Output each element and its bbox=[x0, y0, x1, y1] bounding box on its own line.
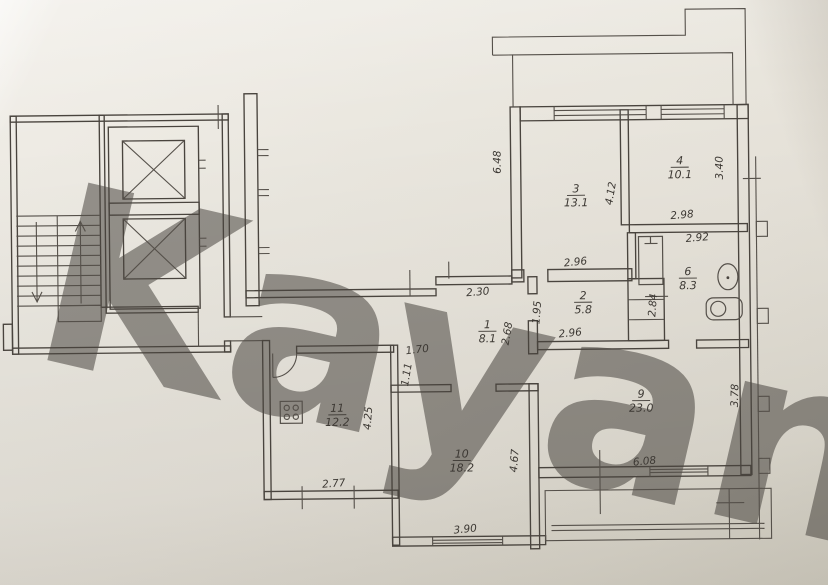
dimension-label: 4.25 bbox=[361, 406, 375, 431]
dimension-label: 6.48 bbox=[492, 150, 504, 174]
dimension-label: 3.78 bbox=[729, 383, 742, 407]
svg-text:8.3: 8.3 bbox=[679, 279, 697, 292]
watermark-text: Kayan bbox=[12, 129, 828, 585]
svg-text:23.0: 23.0 bbox=[629, 401, 654, 414]
svg-text:9: 9 bbox=[638, 388, 645, 401]
dimension-label: 3.40 bbox=[714, 156, 726, 180]
dimension-label: 3.90 bbox=[453, 522, 478, 536]
svg-text:11: 11 bbox=[330, 402, 344, 415]
svg-text:6: 6 bbox=[684, 265, 691, 278]
dimension-label: 1.95 bbox=[530, 300, 544, 325]
svg-text:10: 10 bbox=[455, 447, 469, 460]
room-label: 410.1 bbox=[667, 154, 692, 181]
svg-text:12.2: 12.2 bbox=[325, 416, 350, 429]
svg-text:3: 3 bbox=[572, 182, 579, 195]
dimension-label: 2.77 bbox=[322, 477, 347, 491]
room10-window-wall bbox=[433, 536, 503, 546]
svg-text:18.2: 18.2 bbox=[450, 461, 475, 474]
svg-text:10.1: 10.1 bbox=[667, 168, 692, 181]
dimension-label: 2.98 bbox=[670, 208, 695, 222]
floor-plan-photo: Kayan bbox=[0, 0, 828, 585]
dimension-label: 2.92 bbox=[685, 231, 710, 245]
svg-text:5.8: 5.8 bbox=[574, 303, 592, 316]
dimension-label: 4.12 bbox=[603, 181, 619, 206]
svg-text:1: 1 bbox=[484, 318, 491, 331]
dimension-label: 6.08 bbox=[632, 454, 657, 468]
dimension-label: 2.96 bbox=[558, 326, 583, 340]
svg-text:8.1: 8.1 bbox=[479, 332, 497, 345]
room-label: 313.1 bbox=[564, 182, 589, 209]
dimension-label: 2.30 bbox=[466, 285, 491, 299]
svg-text:4: 4 bbox=[676, 154, 683, 167]
facade-notch bbox=[3, 324, 12, 350]
svg-text:2: 2 bbox=[580, 289, 587, 302]
north-wall-windows bbox=[520, 104, 748, 120]
dimension-label: 4.67 bbox=[508, 448, 522, 473]
dimension-label: 2.84 bbox=[646, 293, 660, 317]
svg-text:13.1: 13.1 bbox=[564, 196, 589, 209]
balcony-top bbox=[492, 9, 746, 108]
dimension-label: 2.96 bbox=[563, 255, 588, 269]
